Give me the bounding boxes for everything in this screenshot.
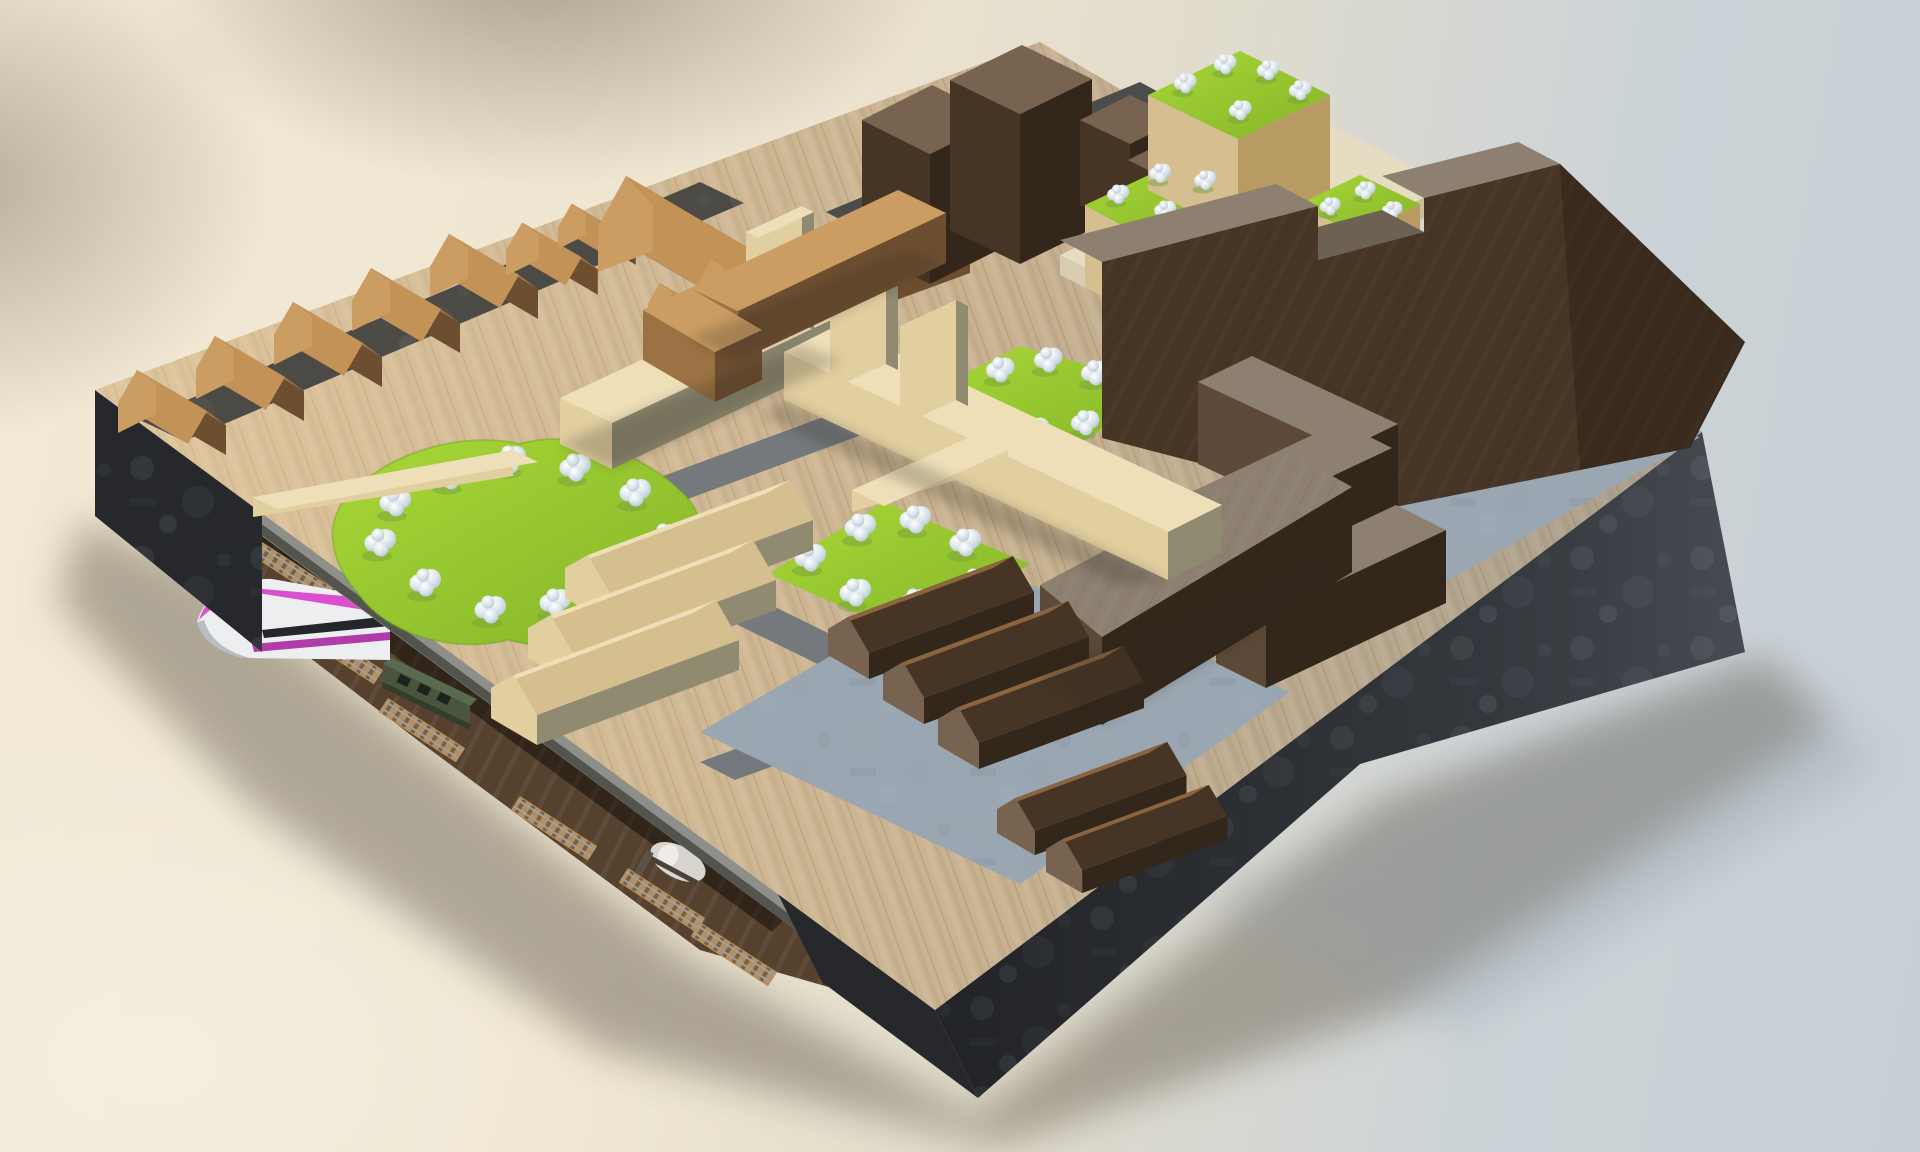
model-render — [0, 0, 1920, 1152]
studio-backdrop — [0, 0, 1920, 1152]
